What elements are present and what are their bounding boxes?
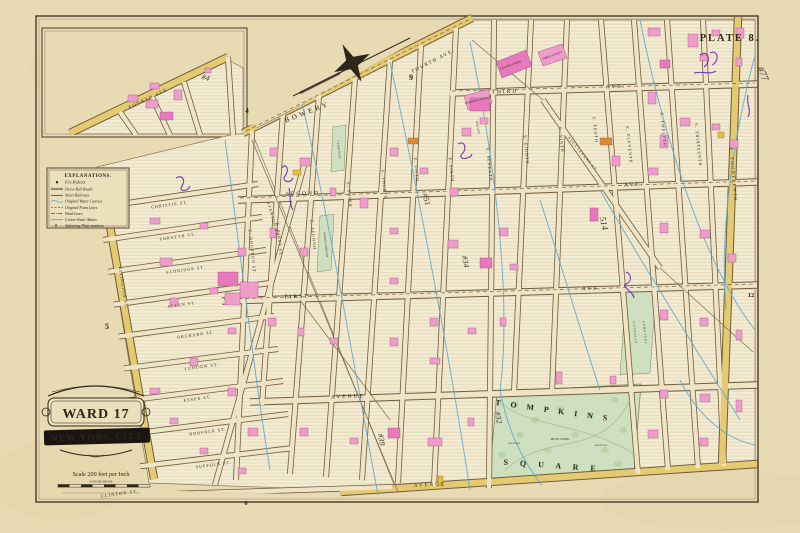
building (390, 148, 398, 156)
legend-item: Fire Hydrant (64, 181, 86, 185)
building (660, 223, 668, 233)
building (590, 208, 598, 221)
building (480, 258, 492, 268)
plate-number-5: 5 (105, 322, 109, 331)
building (736, 58, 742, 66)
building (146, 100, 158, 108)
scale-ticks: 0 100 200 300 400 (90, 480, 113, 484)
plate-title: PLATE 8. (700, 33, 761, 44)
park-tree-icon (571, 432, 579, 438)
building (648, 168, 658, 175)
plate-number-12: 12 (748, 292, 755, 299)
building (736, 400, 742, 412)
building (270, 148, 278, 156)
building (298, 328, 304, 336)
building (612, 156, 620, 166)
building (500, 228, 508, 236)
building (430, 358, 440, 364)
park-tree-icon (614, 461, 622, 467)
building (150, 83, 159, 89)
building (660, 310, 668, 320)
plate-number-9: 9 (409, 73, 413, 82)
building (700, 394, 710, 402)
street-third-ave-2: AVE. (606, 84, 626, 91)
building (150, 388, 160, 394)
street-avenue-a: AVENUE (331, 393, 365, 400)
building (228, 388, 236, 396)
building (390, 338, 398, 346)
plate-number-4: 4 (245, 107, 249, 115)
building (360, 198, 368, 208)
scale-text: Scale 200 feet per Inch (72, 471, 130, 478)
building (500, 318, 506, 326)
building (300, 248, 308, 256)
building (330, 338, 338, 344)
street-second-ave: SECOND (286, 190, 320, 197)
legend-item: Original Farm Lines (65, 206, 98, 210)
atlas-sheet: BOWERYFOURTH AVE.THIRDAVE.SECONDAVE.FIRS… (0, 0, 800, 533)
building (210, 288, 218, 294)
building (712, 124, 720, 130)
map-svg: BOWERYFOURTH AVE.THIRDAVE.SECONDAVE.FIRS… (0, 0, 800, 533)
park-tree-icon (516, 432, 524, 438)
building (268, 318, 276, 326)
street-first-ave: FIRST (284, 294, 309, 301)
building (648, 430, 658, 438)
building (600, 138, 612, 145)
building (170, 418, 178, 424)
building (660, 390, 668, 398)
building (736, 330, 742, 340)
building (688, 34, 698, 47)
building (556, 372, 562, 384)
building (330, 188, 336, 196)
building (430, 318, 438, 326)
building (428, 438, 442, 446)
explanations-box: EXPLANATIONS. Fire Hydrant Horse Rail Ro… (47, 168, 129, 228)
building (700, 438, 708, 446)
park-fountain-1: FOUNTAIN (508, 442, 521, 445)
legend-item: Street Railways (65, 194, 90, 198)
building (468, 418, 474, 426)
building (160, 258, 172, 266)
building (660, 60, 670, 68)
park-tree-icon (601, 447, 609, 453)
building (174, 90, 182, 100)
legend-item: Croton Water Mains (65, 218, 97, 222)
park-tree-icon (611, 397, 619, 403)
park-fountain-2: FOUNTAIN (595, 444, 608, 447)
building (700, 318, 708, 326)
building (408, 138, 418, 144)
park-music-stand: MUSIC STAND (551, 438, 570, 441)
building (150, 218, 160, 224)
ward-title: WARD 17 (62, 407, 129, 422)
building (680, 118, 690, 126)
building (200, 223, 208, 229)
legend-item: Original Water Courses (65, 200, 103, 204)
park-tree-icon (619, 427, 627, 433)
building (700, 55, 708, 61)
street-second-ave-2: AVE. (624, 182, 644, 189)
building (648, 92, 656, 104)
scale-bar (58, 485, 150, 488)
building (350, 438, 358, 444)
building (218, 272, 238, 286)
building (700, 230, 710, 238)
building (450, 188, 458, 196)
building (718, 132, 724, 138)
building (462, 128, 471, 136)
building (728, 254, 736, 262)
building (240, 282, 258, 298)
building (420, 168, 428, 174)
building (300, 428, 308, 436)
legend-item: Ward Lines (65, 212, 83, 216)
legend-item: Horse Rail Roads (64, 188, 93, 192)
building (468, 328, 476, 334)
building (388, 428, 400, 438)
building (238, 468, 246, 474)
building (300, 158, 310, 166)
building (648, 28, 660, 36)
building (225, 293, 240, 305)
building (200, 448, 208, 454)
building (390, 278, 398, 284)
street-third-ave: THIRD (491, 89, 518, 96)
building (610, 376, 616, 384)
building (510, 264, 518, 270)
building (293, 170, 301, 175)
building (390, 228, 398, 234)
building (238, 248, 246, 256)
building (160, 112, 173, 120)
explanations-title: EXPLANATIONS. (64, 174, 111, 179)
legend-item: Adjoining Plate numbers (64, 224, 104, 228)
building (248, 428, 258, 436)
building (480, 118, 488, 124)
legend-plate-symbol: 9 (55, 224, 57, 228)
building (228, 328, 236, 334)
building (448, 240, 458, 248)
street-first-ave-2: AVE. (582, 286, 602, 293)
